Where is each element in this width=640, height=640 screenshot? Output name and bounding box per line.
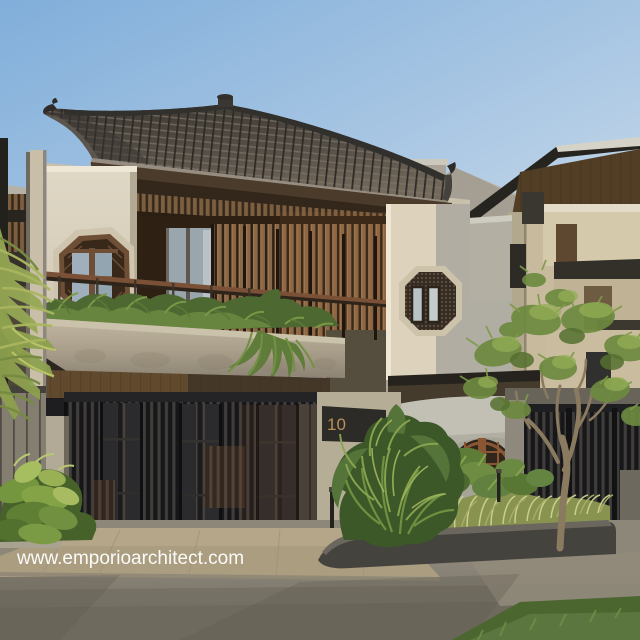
svg-text:www.emporioarchitect.com: www.emporioarchitect.com xyxy=(16,548,244,569)
svg-text:10: 10 xyxy=(327,415,346,434)
